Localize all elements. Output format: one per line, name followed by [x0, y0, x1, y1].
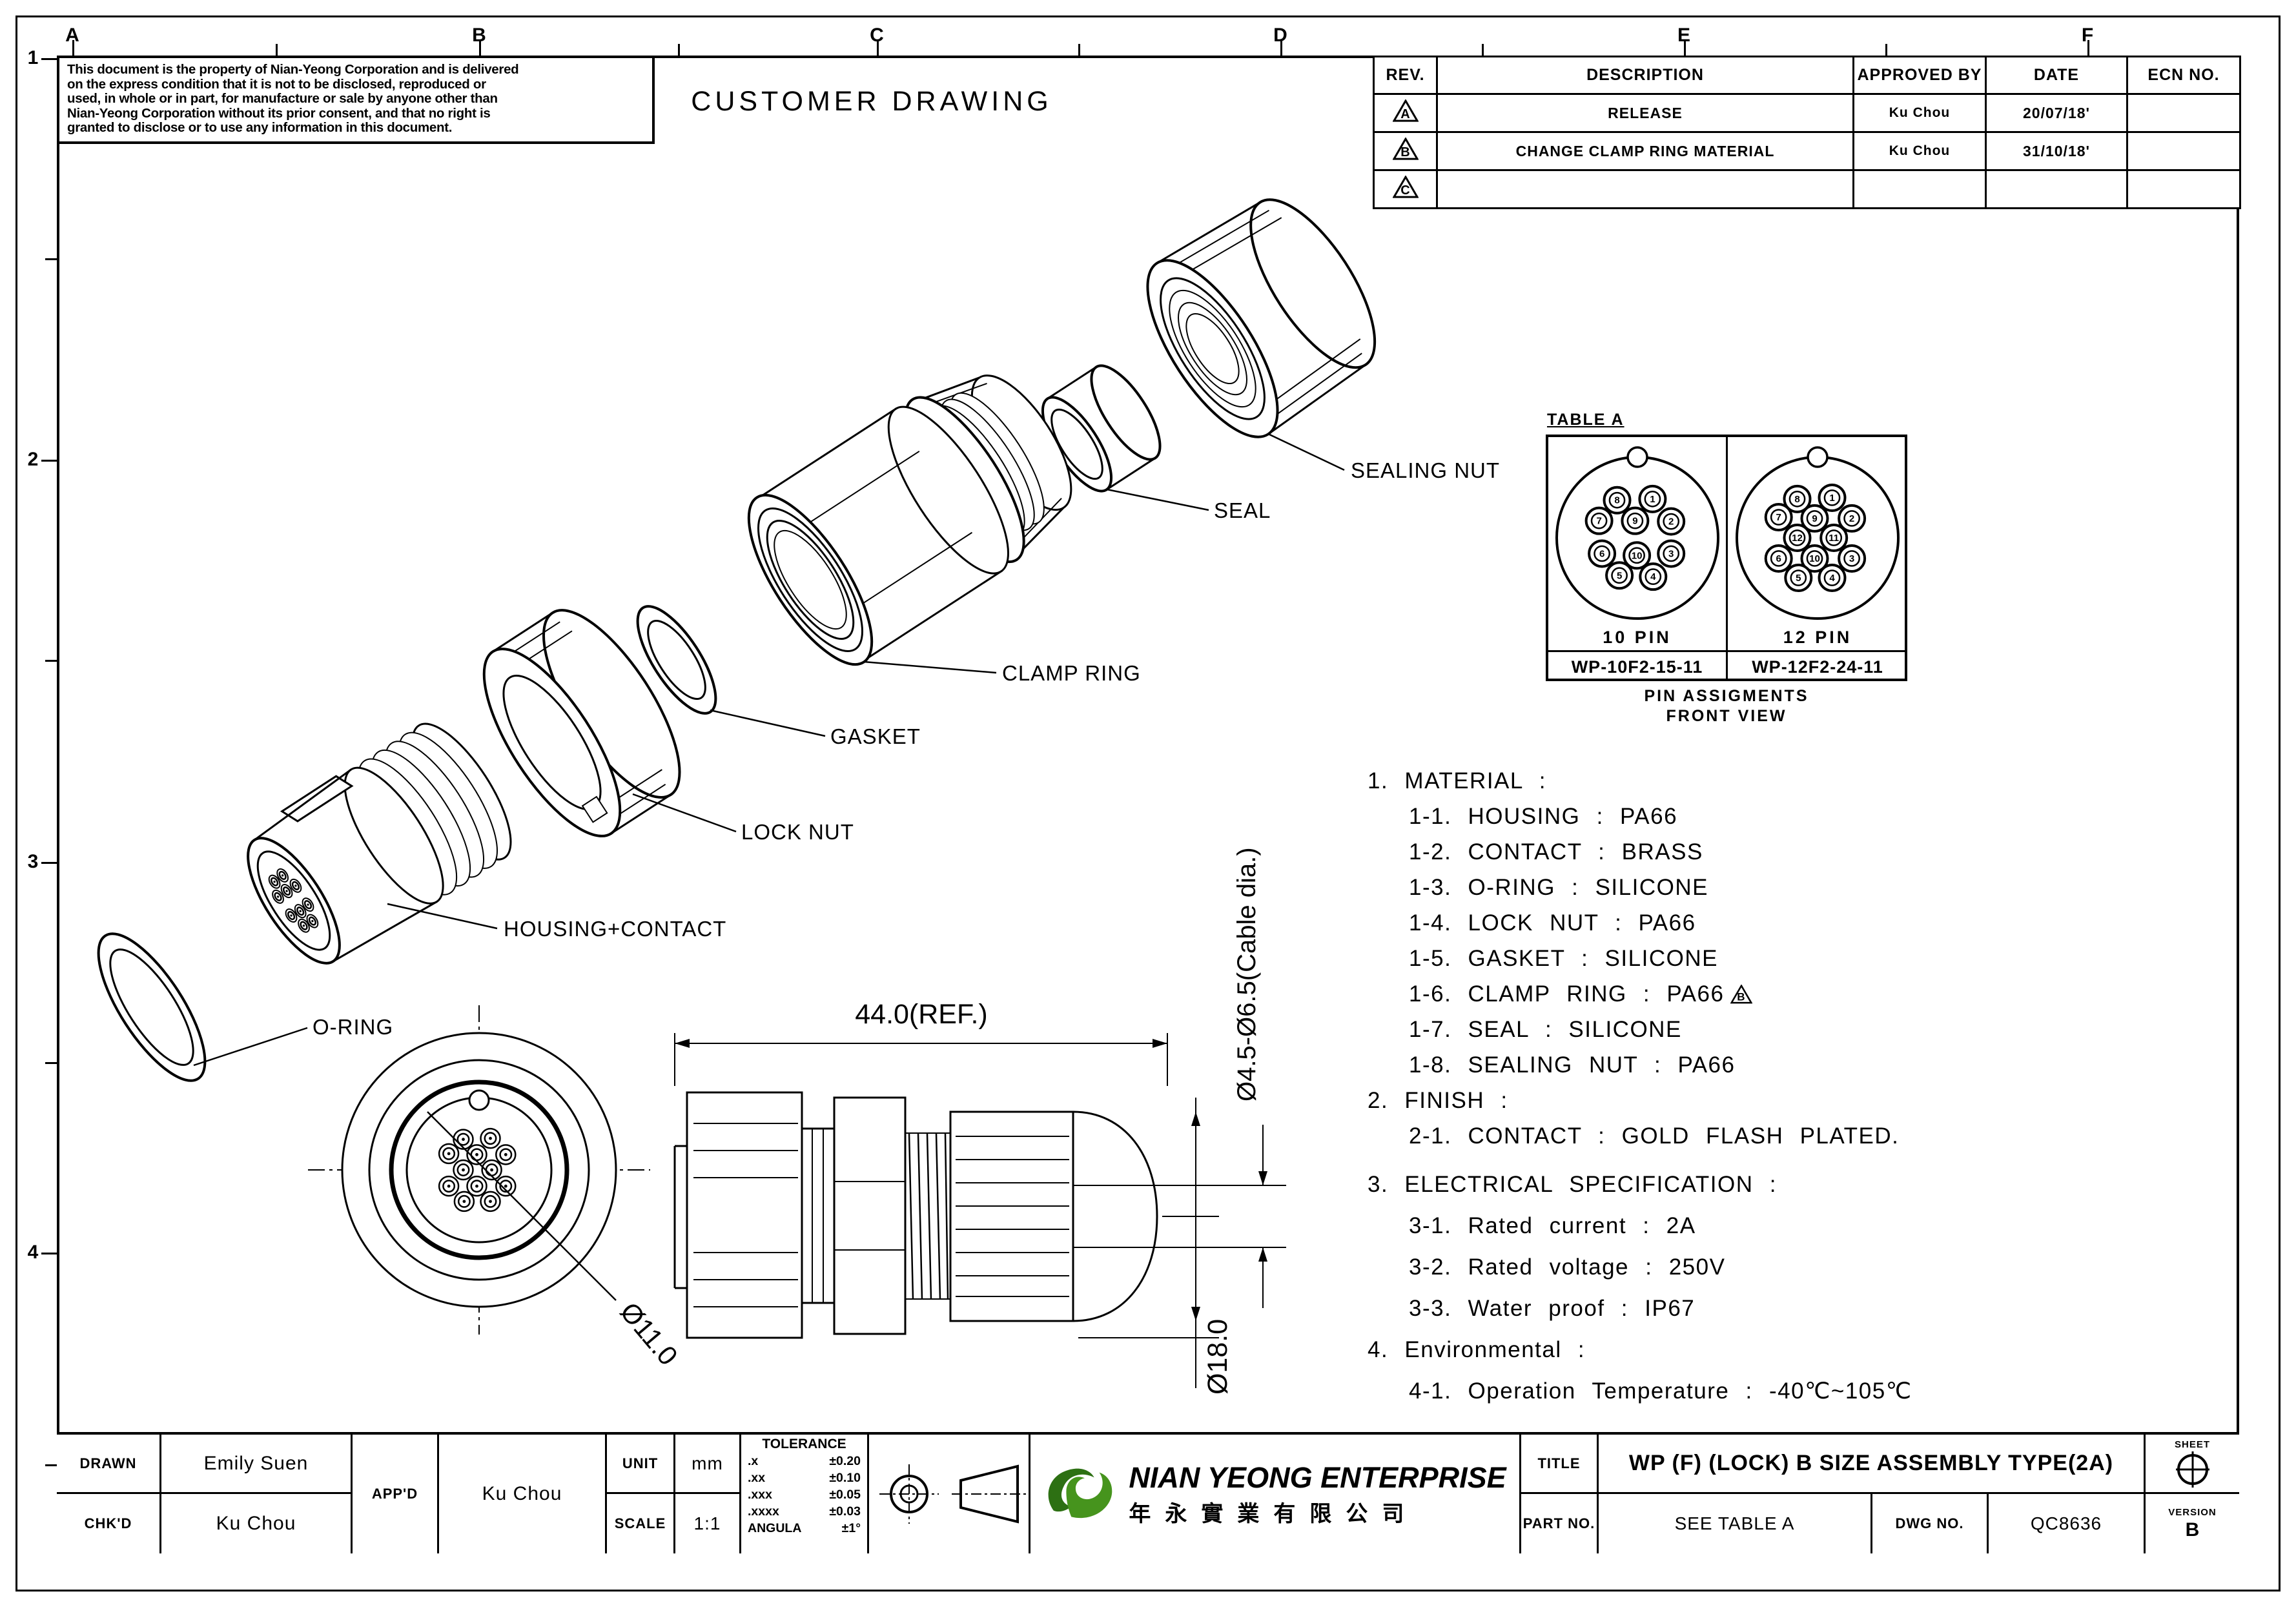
revision-approved-cell: Ku Chou	[1854, 94, 1986, 132]
revision-header-cell: DATE	[1986, 57, 2127, 94]
pin-number: 5	[1796, 573, 1801, 584]
pin-number: 9	[1812, 513, 1817, 524]
table-a-title: TABLE A	[1547, 411, 1907, 429]
revision-header-row: REV.DESCRIPTIONAPPROVED BYDATEECN NO.	[1374, 57, 2240, 94]
spec-line: 1-1. HOUSING : PA66	[1368, 799, 2259, 834]
projection-cone-icon	[952, 1466, 1027, 1522]
pin-number: 10	[1632, 550, 1643, 561]
table-a-caption-1: PIN ASSIGMENTS	[1546, 687, 1907, 706]
grid-tick	[1280, 40, 1282, 57]
revision-approved-cell	[1854, 170, 1986, 209]
grid-tick	[45, 258, 58, 260]
grid-tick	[678, 44, 680, 57]
pin-number: 6	[1599, 548, 1604, 559]
revision-description-cell	[1437, 170, 1854, 209]
projection-symbol	[869, 1435, 1030, 1553]
part-number-12pin: WP-12F2-24-11	[1728, 650, 1907, 681]
tolerance-title: TOLERANCE	[748, 1436, 861, 1453]
revision-triangle-icon: C	[1393, 176, 1419, 198]
grid-tick	[41, 460, 58, 462]
spec-line: 4-1. Operation Temperature : -40℃~105℃	[1368, 1373, 2259, 1409]
part-no-value: SEE TABLE A	[1599, 1494, 1872, 1553]
company-name-cn: 年永實業有限公司	[1129, 1496, 1418, 1528]
spec-line: 1-5. GASKET : SILICONE	[1368, 941, 2259, 976]
grid-number-4: 4	[23, 1242, 43, 1264]
pin-number: 8	[1614, 495, 1619, 506]
revision-triangle-icon: B	[1730, 985, 1752, 1004]
unit-label: UNIT	[607, 1435, 675, 1494]
notice-line: Nian-Yeong Corporation without its prior…	[67, 107, 644, 121]
grid-tick	[877, 40, 879, 57]
grid-tick	[72, 40, 74, 57]
revision-ecn-cell	[2127, 170, 2240, 209]
notice-line: on the express condition that it is not …	[67, 77, 644, 92]
scale-value: 1:1	[675, 1494, 741, 1553]
grid-number-2: 2	[23, 449, 43, 471]
revision-row: C	[1374, 170, 2240, 209]
notice-line: used, in whole or in part, for manufactu…	[67, 92, 644, 107]
pin-diagram-12pin: 817921211610354 12 PIN	[1728, 437, 1907, 650]
pin-number: 2	[1668, 517, 1674, 527]
tolerance-box: TOLERANCE .x±0.20.xx±0.10.xxx±0.05.xxxx±…	[741, 1435, 869, 1553]
projection-circle-icon	[879, 1464, 939, 1524]
appd-value: Ku Chou	[439, 1435, 607, 1553]
tolerance-row: .xxxx±0.03	[748, 1503, 861, 1520]
spec-line: 1-6. CLAMP RING : PA66 B	[1368, 976, 2259, 1012]
pin-number: 7	[1596, 516, 1601, 527]
revision-row: A RELEASE Ku Chou 20/07/18'	[1374, 94, 2240, 132]
svg-text:B: B	[1737, 991, 1747, 1003]
revision-header-cell: DESCRIPTION	[1437, 57, 1854, 94]
svg-text:B: B	[1400, 146, 1410, 160]
part-number-10pin: WP-10F2-15-11	[1548, 650, 1728, 681]
revision-rev-cell: C	[1374, 170, 1437, 209]
revision-triangle-icon: B	[1393, 138, 1419, 160]
table-a-box: 81792610354 10 PIN 817921211610354 12 PI…	[1546, 435, 1907, 681]
pin-count-label-12: 12 PIN	[1728, 628, 1907, 648]
svg-text:C: C	[1400, 184, 1410, 198]
spec-line: 2-1. CONTACT : GOLD FLASH PLATED.	[1368, 1118, 2259, 1154]
revision-approved-cell: Ku Chou	[1854, 132, 1986, 170]
pin-number: 5	[1617, 570, 1622, 581]
revision-description-cell: RELEASE	[1437, 94, 1854, 132]
sheet-symbol-icon	[2175, 1451, 2211, 1488]
notice-line: This document is the property of Nian-Ye…	[67, 63, 644, 77]
grid-tick	[41, 58, 58, 60]
revision-table: REV.DESCRIPTIONAPPROVED BYDATEECN NO. A …	[1373, 56, 2241, 209]
scale-label: SCALE	[607, 1494, 675, 1553]
pin-number: 6	[1776, 553, 1781, 564]
grid-tick	[2087, 40, 2089, 57]
customer-drawing-sheet: { "sheet": { "grid_columns": ["A", "B", …	[0, 0, 2296, 1607]
grid-tick	[45, 1464, 58, 1466]
spec-line: 3-1. Rated current : 2A	[1368, 1208, 2259, 1244]
grid-tick	[45, 1062, 58, 1064]
spec-line: 1-3. O-RING : SILICONE	[1368, 870, 2259, 905]
spec-line: 3. ELECTRICAL SPECIFICATION :	[1368, 1167, 2259, 1202]
notice-line: granted to disclose or to use any inform…	[67, 121, 644, 136]
revision-row: B CHANGE CLAMP RING MATERIAL Ku Chou 31/…	[1374, 132, 2240, 170]
tolerance-row: ANGULA±1°	[748, 1520, 861, 1537]
company-logo	[1043, 1463, 1120, 1525]
revision-ecn-cell	[2127, 132, 2240, 170]
drawn-label: DRAWN	[57, 1435, 161, 1494]
grid-number-3: 3	[23, 851, 43, 873]
revision-date-cell: 20/07/18'	[1986, 94, 2127, 132]
pin-number: 4	[1829, 573, 1835, 584]
chkd-label: CHK'D	[57, 1494, 161, 1553]
grid-tick	[41, 1253, 58, 1254]
sheet-cell: SHEET	[2146, 1435, 2239, 1494]
pin-number: 3	[1668, 548, 1674, 559]
pin-number: 8	[1794, 494, 1799, 505]
grid-tick	[276, 44, 278, 57]
pin-number: 4	[1650, 571, 1656, 582]
title-label: TITLE	[1521, 1435, 1599, 1494]
property-notice: This document is the property of Nian-Ye…	[57, 56, 655, 144]
dwg-no-value: QC8636	[1989, 1494, 2146, 1553]
svg-text:A: A	[1400, 108, 1410, 122]
revision-description-cell: CHANGE CLAMP RING MATERIAL	[1437, 132, 1854, 170]
pin-count-label-10: 10 PIN	[1548, 628, 1726, 648]
revision-ecn-cell	[2127, 94, 2240, 132]
pin-number: 2	[1849, 513, 1854, 524]
table-a: TABLE A 81792610354 10 PIN 8179212116103…	[1546, 411, 1907, 726]
grid-tick	[1482, 44, 1484, 57]
title-value: WP (F) (LOCK) B SIZE ASSEMBLY TYPE(2A)	[1599, 1435, 2146, 1494]
specification-list: 1. MATERIAL :1-1. HOUSING : PA661-2. CON…	[1368, 763, 2259, 1409]
grid-tick	[41, 862, 58, 864]
grid-tick	[1684, 40, 1686, 57]
part-no-label: PART NO.	[1521, 1494, 1599, 1553]
pin-number: 3	[1849, 553, 1854, 564]
tolerance-row: .xx±0.10	[748, 1469, 861, 1486]
revision-header-cell: ECN NO.	[2127, 57, 2240, 94]
dwg-no-label: DWG NO.	[1872, 1494, 1989, 1553]
revision-date-cell: 31/10/18'	[1986, 132, 2127, 170]
version-cell: VERSION B	[2146, 1494, 2239, 1553]
pin-number: 1	[1829, 493, 1834, 504]
revision-rev-cell: A	[1374, 94, 1437, 132]
spec-line: 4. Environmental :	[1368, 1332, 2259, 1367]
grid-tick	[1885, 44, 1887, 57]
revision-triangle-icon: A	[1393, 99, 1419, 122]
page-title: CUSTOMER DRAWING	[678, 86, 1065, 118]
pin-number: 9	[1632, 516, 1637, 527]
pin-diagram-10pin: 81792610354 10 PIN	[1548, 437, 1728, 650]
spec-line: 1. MATERIAL :	[1368, 763, 2259, 799]
company-block: NIAN YEONG ENTERPRISE 年永實業有限公司	[1030, 1435, 1521, 1553]
grid-tick	[1078, 44, 1080, 57]
tolerance-row: .xxx±0.05	[748, 1486, 861, 1503]
table-a-caption-2: FRONT VIEW	[1546, 707, 1907, 726]
pin-number: 10	[1809, 553, 1820, 564]
title-block: DRAWN Emily Suen CHK'D Ku Chou APP'D Ku …	[57, 1432, 2239, 1551]
company-name-en: NIAN YEONG ENTERPRISE	[1129, 1461, 1506, 1495]
spec-line: 2. FINISH :	[1368, 1083, 2259, 1118]
drawn-value: Emily Suen	[161, 1435, 353, 1494]
chkd-value: Ku Chou	[161, 1494, 353, 1553]
spec-line: 1-4. LOCK NUT : PA66	[1368, 905, 2259, 941]
revision-header-cell: REV.	[1374, 57, 1437, 94]
revision-rev-cell: B	[1374, 132, 1437, 170]
spec-line: 3-3. Water proof : IP67	[1368, 1291, 2259, 1326]
tolerance-row: .x±0.20	[748, 1453, 861, 1469]
grid-tick	[479, 40, 481, 57]
spec-line: 1-7. SEAL : SILICONE	[1368, 1012, 2259, 1047]
version-value: B	[2186, 1519, 2200, 1541]
spec-line: 1-8. SEALING NUT : PA66	[1368, 1047, 2259, 1083]
pin-number: 7	[1776, 512, 1781, 523]
pin-number: 11	[1829, 533, 1839, 544]
grid-number-1: 1	[23, 47, 43, 69]
appd-label: APP'D	[353, 1435, 439, 1553]
spec-line: 1-2. CONTACT : BRASS	[1368, 834, 2259, 870]
revision-header-cell: APPROVED BY	[1854, 57, 1986, 94]
revision-date-cell	[1986, 170, 2127, 209]
unit-value: mm	[675, 1435, 741, 1494]
pin-number: 12	[1792, 533, 1803, 544]
grid-tick	[45, 660, 58, 662]
spec-line: 3-2. Rated voltage : 250V	[1368, 1249, 2259, 1285]
pin-number: 1	[1650, 494, 1655, 505]
